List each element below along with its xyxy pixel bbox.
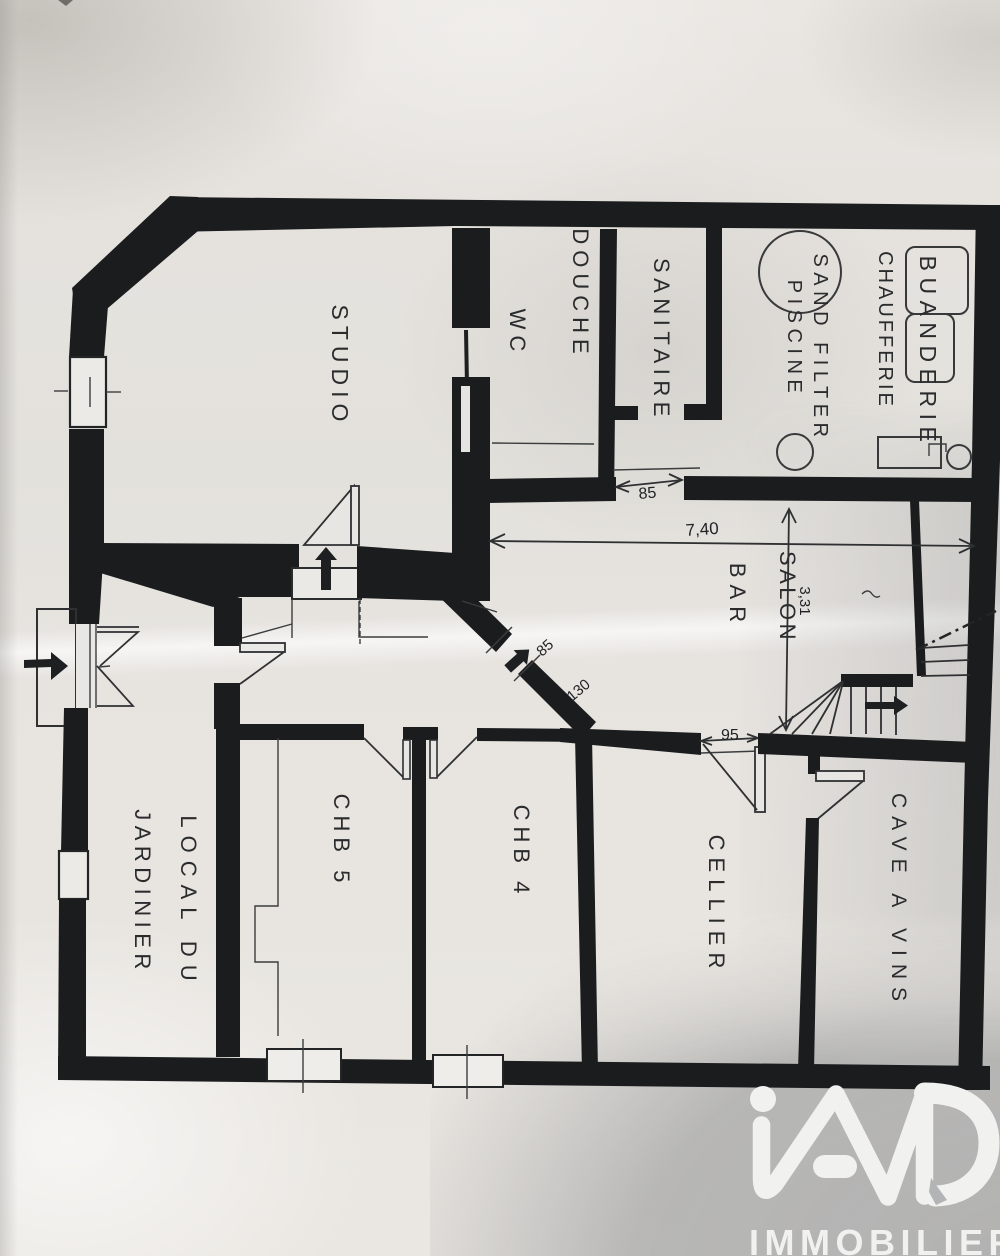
svg-text:JARDINIER: JARDINIER bbox=[130, 809, 155, 975]
svg-text:CHB 4: CHB 4 bbox=[509, 805, 534, 900]
svg-text:CAVE A VINS: CAVE A VINS bbox=[887, 793, 910, 1009]
svg-text:DOUCHE: DOUCHE bbox=[568, 228, 593, 359]
svg-text:IMMOBILIER: IMMOBILIER bbox=[749, 1222, 1000, 1256]
svg-text:SANITAIRE: SANITAIRE bbox=[649, 258, 674, 422]
svg-text:3,31: 3,31 bbox=[796, 586, 813, 615]
svg-text:85: 85 bbox=[638, 484, 657, 502]
svg-text:CHB 5: CHB 5 bbox=[329, 794, 354, 889]
svg-text:7,40: 7,40 bbox=[685, 519, 719, 540]
svg-text:WC: WC bbox=[505, 309, 530, 358]
svg-text:SAND FILTER: SAND FILTER bbox=[809, 253, 831, 442]
svg-text:CELLIER: CELLIER bbox=[704, 835, 729, 976]
svg-text:85: 85 bbox=[533, 636, 557, 660]
svg-text:95: 95 bbox=[721, 727, 739, 744]
svg-text:BUANDERIE: BUANDERIE bbox=[915, 256, 941, 449]
svg-text:LOCAL DU: LOCAL DU bbox=[176, 815, 201, 988]
svg-text:BAR: BAR bbox=[725, 563, 750, 629]
svg-text:PISCINE: PISCINE bbox=[783, 280, 805, 399]
svg-text:CHAUFFERIE: CHAUFFERIE bbox=[874, 251, 896, 409]
svg-text:STUDIO: STUDIO bbox=[327, 305, 353, 428]
